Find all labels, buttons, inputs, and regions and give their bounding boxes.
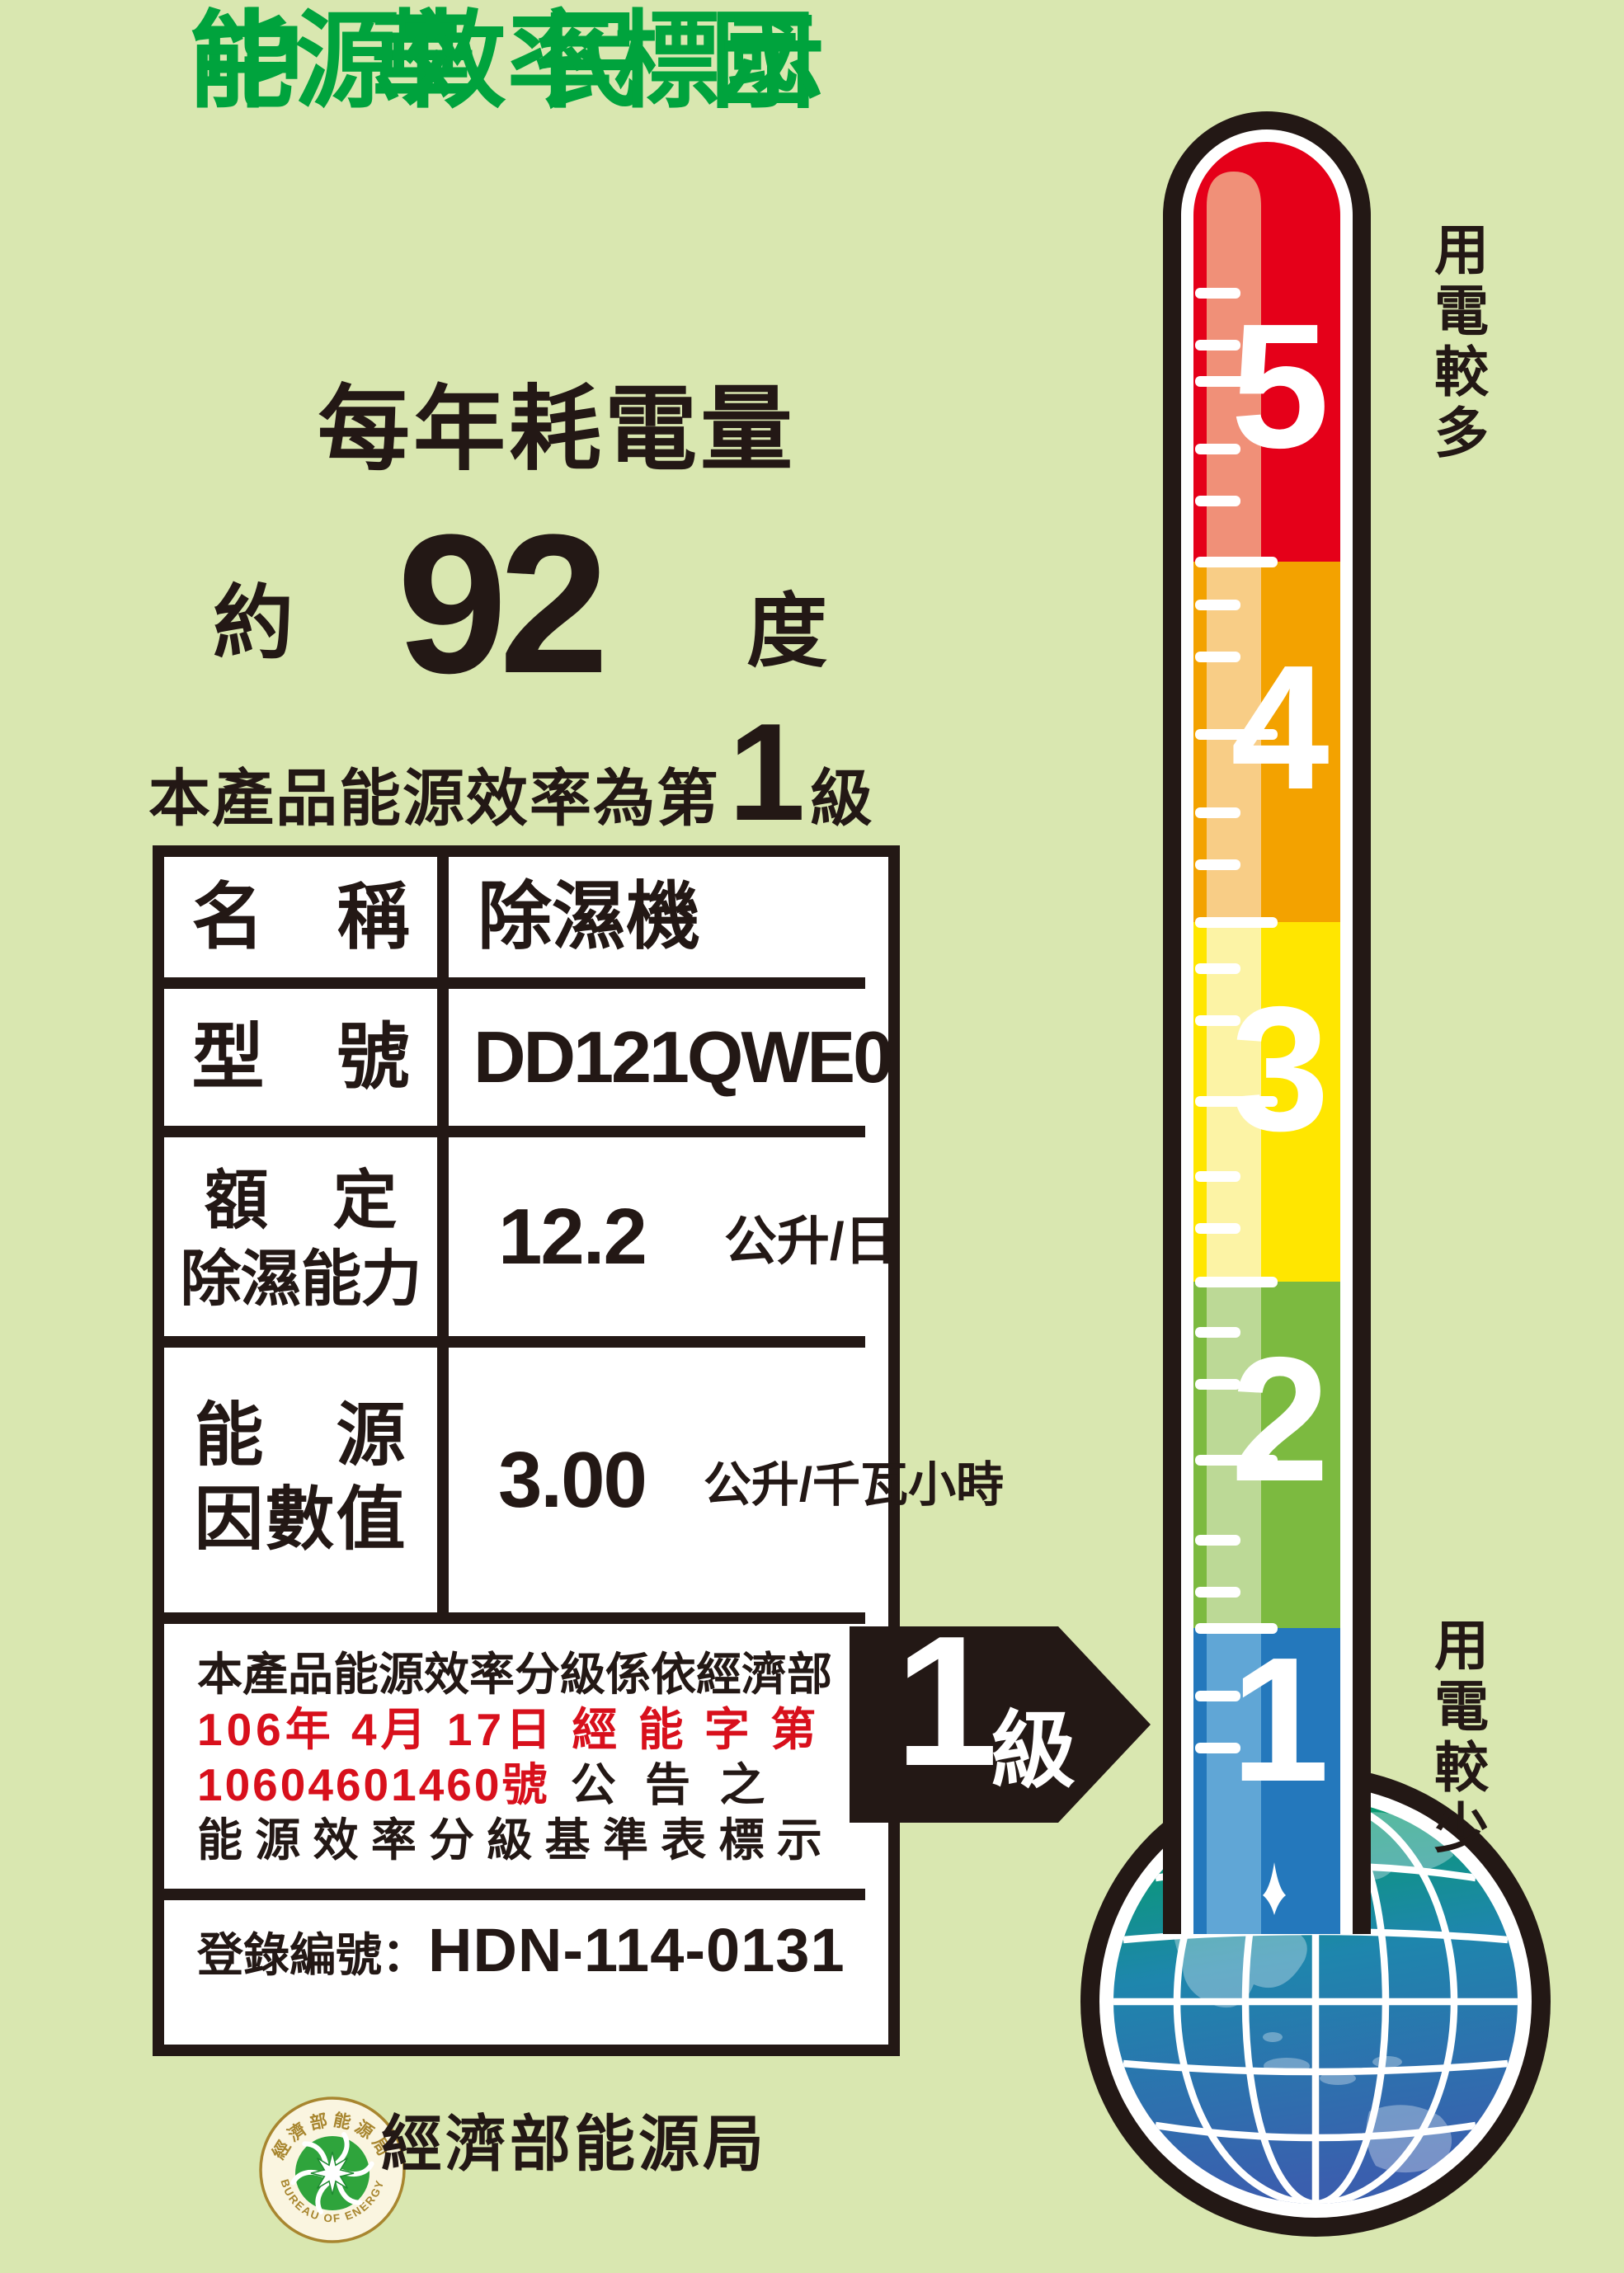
grading-basis-notice: 本產品能源效率分級係依經濟部 106年 4月 17日 經 能 字 第 10604… (197, 1647, 840, 1868)
grade-sentence-prefix: 本產品能源效率為第 (148, 748, 720, 838)
registration-number: HDN-114-0131 (428, 1915, 845, 1985)
level-2: 2 (1231, 1324, 1330, 1515)
capacity-label: 額 定 除濕能力 (164, 1160, 437, 1319)
registration-label: 登錄編號： (197, 1918, 428, 1985)
column-divider (437, 857, 449, 1624)
annual-consumption-value: 92 (392, 505, 606, 703)
level-5: 5 (1231, 290, 1330, 482)
spec-table: 名 稱 除濕機 型 號 DD121QWE0 額 定 除濕能力 12.2 公升/日… (153, 845, 900, 2056)
grade-sentence: 本產品能源效率為第 1 級 (148, 703, 891, 841)
registration-row: 登錄編號： HDN-114-0131 (197, 1915, 845, 1985)
thermometer-graphic (1056, 99, 1624, 2273)
grade-sentence-suffix: 級 (810, 748, 873, 838)
row-divider (164, 1889, 865, 1900)
less-power-label: 用電較少 (1423, 1617, 1497, 1861)
more-power-label: 用電較多 (1423, 221, 1497, 465)
label-title: 能源效率標示 (0, 0, 1014, 124)
grade-sentence-number: 1 (728, 703, 805, 841)
energy-factor-unit: 公升/千瓦小時 (704, 1446, 1004, 1515)
row-divider (164, 977, 865, 989)
row-divider (164, 1126, 865, 1137)
model-label: 型 號 (164, 989, 437, 1126)
capacity-unit: 公升/日 (724, 1199, 897, 1275)
consumption-unit: 度 (746, 566, 827, 683)
capacity-value-row: 12.2 公升/日 (449, 1137, 915, 1336)
level-1: 1 (1231, 1624, 1330, 1815)
row-divider (164, 1612, 865, 1624)
grade-arrow-number: 1 (895, 1608, 998, 1794)
model-value: DD121QWE0 (449, 989, 890, 1126)
energy-factor-label: 能 源 因數值 (164, 1393, 437, 1561)
energy-label: 中華民國 能源效率標示 每年耗電量 約 92 度 本產品能源效率為第 1 級 名… (0, 0, 1624, 2273)
level-4: 4 (1231, 632, 1330, 823)
name-label: 名 稱 (164, 857, 437, 977)
approx-prefix: 約 (213, 558, 294, 675)
level-3: 3 (1231, 973, 1330, 1165)
seal-star-icon (311, 2152, 354, 2195)
name-value: 除濕機 (449, 857, 894, 977)
capacity-value: 12.2 (498, 1192, 646, 1282)
energy-factor-value: 3.00 (498, 1435, 646, 1526)
row-divider (164, 1336, 865, 1348)
annual-consumption-heading: 每年耗電量 (49, 355, 1064, 488)
energy-factor-value-row: 3.00 公升/千瓦小時 (449, 1348, 915, 1612)
agency-name: 經濟部能源局 (381, 2095, 767, 2183)
